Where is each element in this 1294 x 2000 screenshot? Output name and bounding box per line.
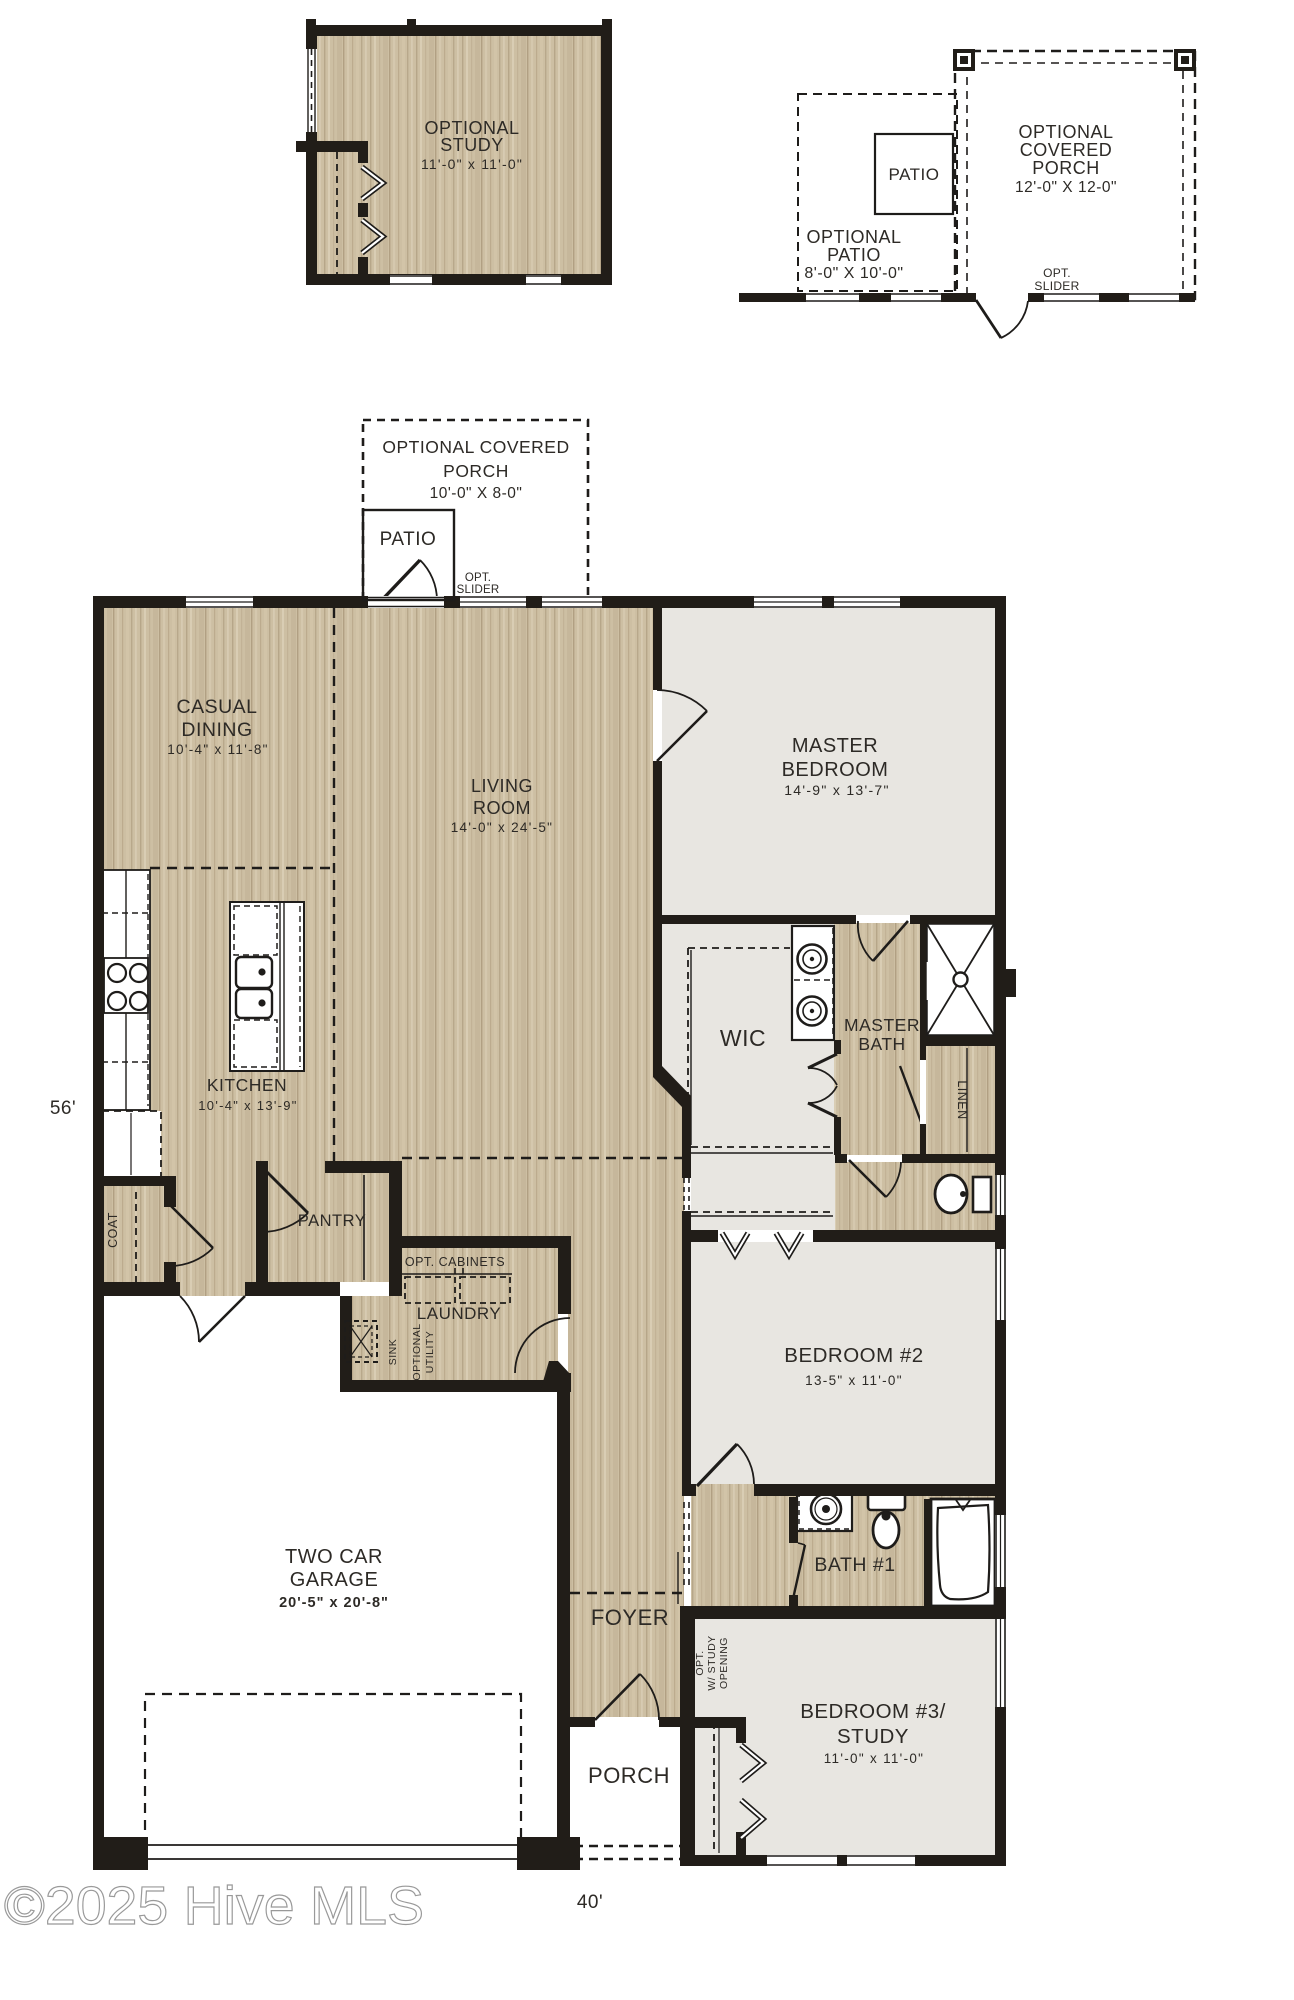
svg-text:PORCH: PORCH xyxy=(588,1763,670,1788)
svg-text:10'-4" x 11'-8": 10'-4" x 11'-8" xyxy=(167,742,269,757)
svg-text:MASTER: MASTER xyxy=(844,1015,920,1035)
svg-text:SLIDER: SLIDER xyxy=(1034,279,1079,293)
svg-text:BEDROOM #2: BEDROOM #2 xyxy=(784,1344,923,1367)
svg-text:10'-4" x 13'-9": 10'-4" x 13'-9" xyxy=(198,1098,297,1113)
svg-text:BATH #1: BATH #1 xyxy=(814,1554,895,1576)
svg-text:14'-9" x 13'-7": 14'-9" x 13'-7" xyxy=(784,782,890,798)
svg-text:ROOM: ROOM xyxy=(473,798,531,818)
svg-text:SINK: SINK xyxy=(387,1339,399,1366)
svg-text:11'-0" x 11'-0": 11'-0" x 11'-0" xyxy=(824,1751,925,1766)
svg-text:LINEN: LINEN xyxy=(955,1080,969,1119)
svg-text:OPTIONAL: OPTIONAL xyxy=(806,227,901,247)
svg-text:11'-0" x 11'-0": 11'-0" x 11'-0" xyxy=(421,156,523,172)
svg-text:13-5" x 11'-0": 13-5" x 11'-0" xyxy=(805,1373,903,1388)
svg-text:MASTER: MASTER xyxy=(792,735,878,757)
svg-text:OPTIONAL: OPTIONAL xyxy=(1018,122,1113,142)
svg-text:PANTRY: PANTRY xyxy=(298,1212,366,1230)
svg-text:GARAGE: GARAGE xyxy=(290,1569,379,1591)
svg-text:WIC: WIC xyxy=(720,1025,766,1051)
svg-text:COAT: COAT xyxy=(106,1212,120,1248)
svg-text:BEDROOM: BEDROOM xyxy=(782,759,889,781)
svg-text:©2025 Hive MLS: ©2025 Hive MLS xyxy=(4,1876,424,1936)
svg-text:LAUNDRY: LAUNDRY xyxy=(417,1304,501,1323)
svg-text:SLIDER: SLIDER xyxy=(457,584,500,596)
svg-text:UTILITY: UTILITY xyxy=(424,1331,436,1374)
svg-text:PORCH: PORCH xyxy=(1032,158,1100,178)
svg-text:CASUAL: CASUAL xyxy=(176,696,257,718)
svg-text:56': 56' xyxy=(50,1098,76,1119)
svg-text:PATIO: PATIO xyxy=(380,529,437,550)
svg-text:PORCH: PORCH xyxy=(443,461,509,481)
svg-text:PATIO: PATIO xyxy=(827,245,881,265)
svg-text:OPT.: OPT. xyxy=(465,572,491,584)
svg-text:14'-0" x 24'-5": 14'-0" x 24'-5" xyxy=(451,820,554,835)
svg-text:OPTIONAL: OPTIONAL xyxy=(411,1323,423,1380)
svg-text:OPTIONAL COVERED: OPTIONAL COVERED xyxy=(382,437,569,457)
svg-text:TWO CAR: TWO CAR xyxy=(285,1546,383,1568)
svg-text:10'-0" X 8-0": 10'-0" X 8-0" xyxy=(430,485,523,502)
svg-text:OPT.: OPT. xyxy=(694,1650,706,1675)
svg-text:BEDROOM #3/: BEDROOM #3/ xyxy=(800,1700,946,1723)
svg-text:20'-5" x 20'-8": 20'-5" x 20'-8" xyxy=(279,1595,389,1611)
svg-text:12'-0" X 12-0": 12'-0" X 12-0" xyxy=(1015,179,1117,196)
svg-text:OPT.: OPT. xyxy=(1043,266,1071,280)
svg-text:KITCHEN: KITCHEN xyxy=(207,1075,287,1095)
svg-text:DINING: DINING xyxy=(181,719,252,741)
svg-text:FOYER: FOYER xyxy=(591,1605,669,1630)
svg-text:PATIO: PATIO xyxy=(889,165,940,184)
svg-text:LIVING: LIVING xyxy=(471,776,533,796)
svg-text:OPT. CABINETS: OPT. CABINETS xyxy=(405,1255,505,1269)
svg-text:STUDY: STUDY xyxy=(440,135,504,155)
svg-text:STUDY: STUDY xyxy=(837,1725,909,1748)
svg-text:8'-0" X 10'-0": 8'-0" X 10'-0" xyxy=(804,265,903,282)
svg-text:W/ STUDY: W/ STUDY xyxy=(706,1635,718,1690)
svg-text:BATH: BATH xyxy=(858,1034,905,1054)
svg-text:COVERED: COVERED xyxy=(1020,140,1113,160)
svg-text:40': 40' xyxy=(577,1892,603,1913)
svg-text:OPENING: OPENING xyxy=(718,1637,730,1689)
